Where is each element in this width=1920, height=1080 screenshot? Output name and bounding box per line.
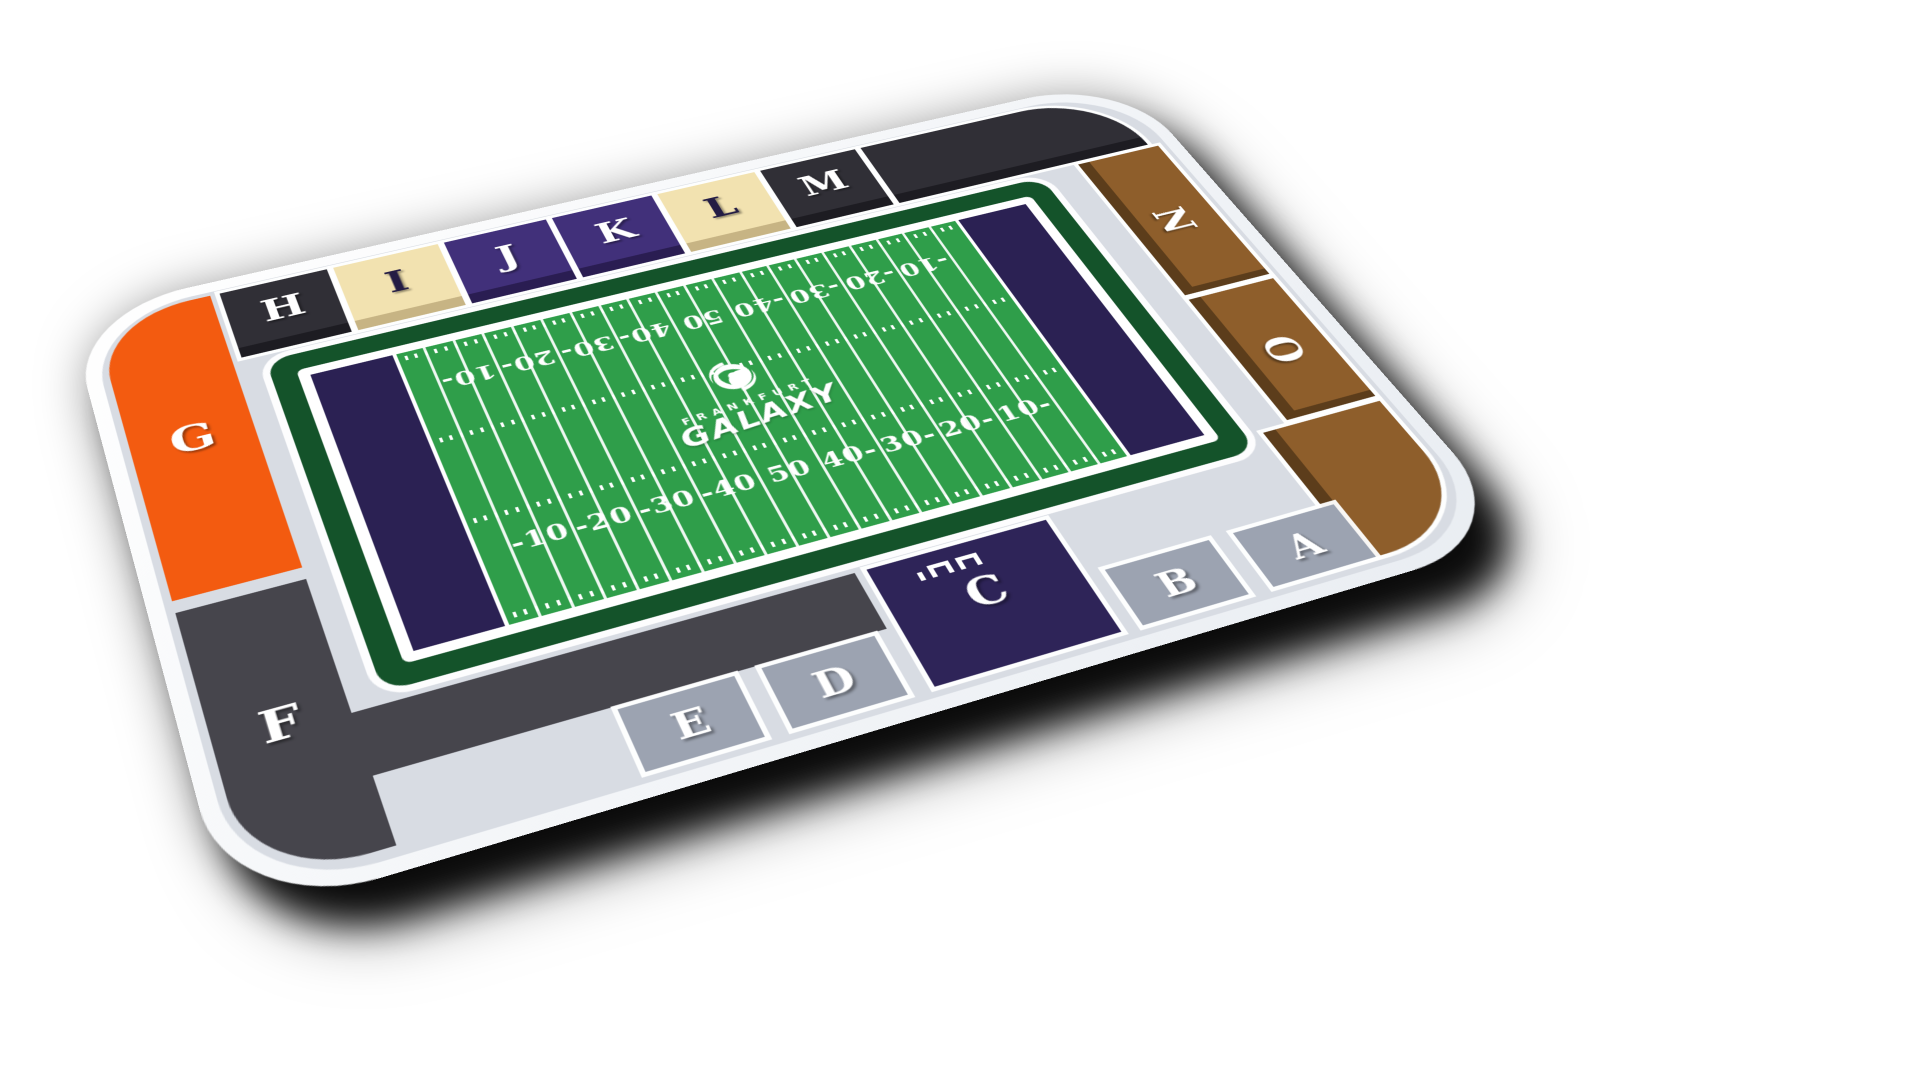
stadium-map: G F H I J K L M <box>68 77 1527 923</box>
stadium-seating-map-page: G F H I J K L M <box>0 0 1920 1080</box>
yard-number: 30- <box>552 330 621 365</box>
gate-icon <box>954 553 982 570</box>
section-F-label: F <box>252 694 309 755</box>
section-C-label: C <box>955 566 1018 617</box>
yard-number: 10- <box>433 358 503 394</box>
section-O-label: O <box>1244 326 1317 369</box>
yard-number: -40 <box>691 468 765 508</box>
yard-number: -30 <box>629 484 704 524</box>
gate-tick-icon <box>916 572 926 581</box>
yard-number: 40- <box>610 316 679 350</box>
section-L-label: L <box>698 190 744 225</box>
yard-number: 50 <box>668 302 737 336</box>
stadium-shadow: G F H I J K L M <box>0 0 1920 1080</box>
gate-icon <box>926 560 955 577</box>
yard-number: -10 <box>502 517 578 558</box>
yard-number: -10 <box>890 249 958 281</box>
section-G-label: G <box>164 413 221 463</box>
section-M-label: M <box>792 165 855 203</box>
section-H-label: H <box>256 288 310 329</box>
section-N-label: N <box>1137 198 1205 237</box>
section-K-label: K <box>590 213 642 250</box>
section-D-label: D <box>805 657 864 706</box>
section-B-label: B <box>1147 560 1206 605</box>
yard-number: 20- <box>493 344 563 379</box>
section-A-label: A <box>1276 524 1333 567</box>
yard-number: 10- <box>989 391 1062 428</box>
yard-number: -20 <box>566 500 641 541</box>
section-E-label: E <box>664 698 717 748</box>
section-J-label: J <box>490 239 525 274</box>
section-I-label: I <box>380 264 414 299</box>
